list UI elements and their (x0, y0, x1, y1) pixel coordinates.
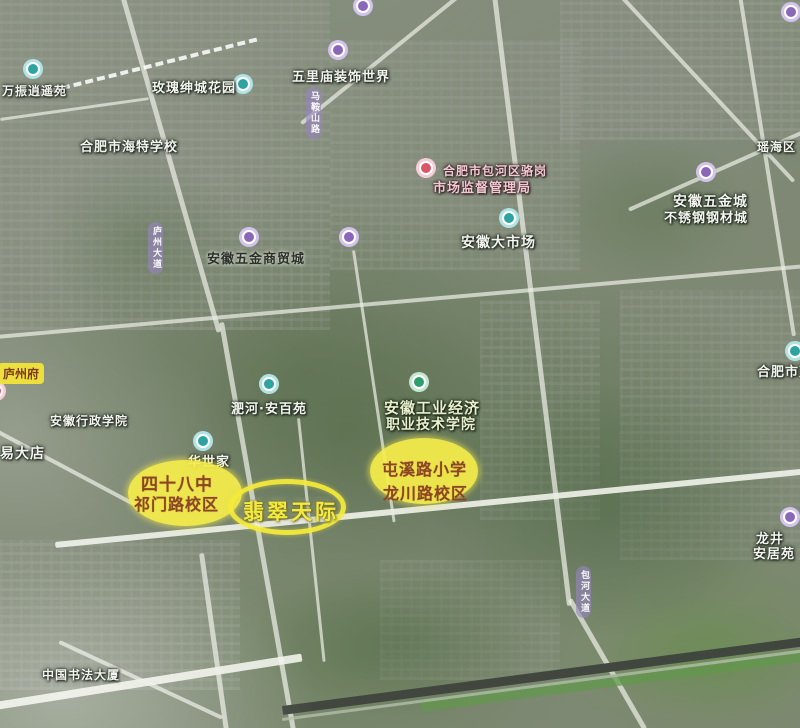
poi-wulimiao-decoration-world-icon[interactable] (328, 40, 348, 60)
poi-anhui-big-market-icon[interactable] (499, 208, 519, 228)
label-haite-school-label[interactable]: 合肥市海特学校 (80, 136, 178, 155)
poi-topright-corner-marker-icon[interactable] (781, 2, 800, 22)
poi-wanzhen-xiaoyaoyuan-label[interactable]: 万振逍遥苑 (2, 82, 67, 99)
poi-wujin-trade-city-label[interactable]: 安徽五金商贸城 (207, 248, 305, 267)
road (0, 428, 136, 507)
poi-anhui-big-market-label[interactable]: 安徽大市场 (461, 232, 536, 252)
label-china-calligraphy-building-label[interactable]: 中国书法大厦 (42, 666, 120, 683)
poi-longjing-line2[interactable]: 安居苑 (753, 543, 795, 562)
label-yidadian-label[interactable]: 易大店 (0, 443, 45, 463)
label-administration-institute-label[interactable]: 安徽行政学院 (50, 412, 128, 429)
poi-longjing-icon[interactable] (780, 507, 800, 527)
label-yaohai-district-label[interactable]: 瑶海区 (757, 138, 796, 155)
road-tag-baohe-avenue-label: 包河大道 (576, 566, 591, 618)
satellite-map-image[interactable]: 万振逍遥苑玫瑰绅城花园五里庙装饰世界合肥市海特学校瑶海区安徽五金城不锈钢钢材城合… (0, 0, 800, 728)
poi-unlabeled-purple-marker-icon[interactable] (339, 227, 359, 247)
highlight-feicui-tianji-label: 翡翠天际 (243, 496, 339, 526)
poi-market-supervision-bureau-icon[interactable] (416, 158, 436, 178)
urban-area-texture (560, 0, 800, 140)
highlight-no48-middle-school-line2: 祁门路校区 (134, 491, 219, 515)
highlight-tunxi-road-primary-line2: 龙川路校区 (383, 480, 468, 504)
poi-market-supervision-bureau-line2[interactable]: 市场监督管理局 (433, 177, 531, 196)
poi-wulimiao-decoration-world-label[interactable]: 五里庙装饰世界 (292, 66, 390, 85)
poi-anhui-industry-economy-college-line2[interactable]: 职业技术学院 (386, 414, 476, 434)
poi-rightedge-hefeishi-label[interactable]: 合肥市双 (757, 361, 800, 380)
poi-feihe-anbaiyuan-label[interactable]: 淝河·安百苑 (231, 398, 307, 417)
poi-wujin-stainless-city-line2[interactable]: 不锈钢钢材城 (664, 207, 748, 226)
poi-wujin-stainless-city-icon[interactable] (696, 162, 716, 182)
poi-meigui-shencheng-garden-label[interactable]: 玫瑰绅城花园 (152, 77, 236, 96)
road-tag-maanshan-road-label: 马鞍山路 (306, 87, 321, 139)
poi-rightedge-hefeishi-icon[interactable] (785, 341, 800, 361)
poi-leftedge-red-marker-icon[interactable] (0, 381, 6, 401)
badge-luzhoufu-label[interactable]: 庐州府 (0, 363, 44, 384)
poi-top-edge-marker-icon[interactable] (353, 0, 373, 16)
poi-feihe-anbaiyuan-icon[interactable] (259, 374, 279, 394)
poi-anhui-industry-economy-college-icon[interactable] (409, 372, 429, 392)
poi-wujin-trade-city-icon[interactable] (239, 227, 259, 247)
road-tag-luzhou-avenue-label: 庐州大道 (148, 222, 163, 274)
poi-huashijia-icon[interactable] (193, 431, 213, 451)
highlight-tunxi-road-primary-line1: 屯溪路小学 (382, 456, 467, 480)
poi-wanzhen-xiaoyaoyuan-icon[interactable] (23, 59, 43, 79)
